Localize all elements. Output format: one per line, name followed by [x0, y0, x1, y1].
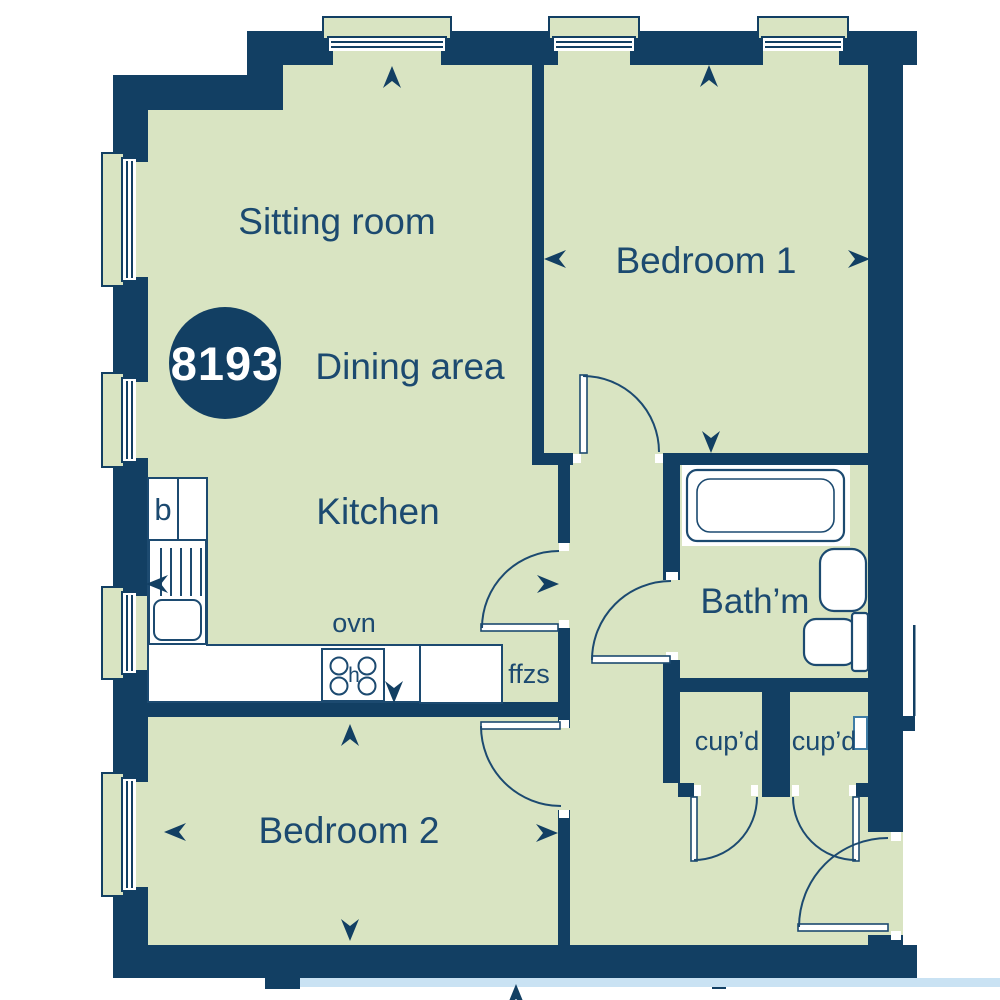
sink-basin — [154, 600, 201, 640]
room-label-cupboard-right: cup’d — [774, 725, 874, 757]
fixture-label-boiler: b — [150, 492, 176, 528]
arrow-up-icon — [700, 65, 718, 87]
door-bedroom1 — [580, 375, 659, 453]
arrow-up-icon — [341, 724, 359, 746]
arrow-up-icon — [383, 66, 401, 88]
fixture-label-hob: h — [344, 664, 364, 688]
room-label-sitting: Sitting room — [187, 199, 487, 245]
room-label-kitchen: Kitchen — [228, 489, 528, 535]
floor-plan: 8193 Sitting room Dining area Kitchen Be… — [0, 0, 1000, 1000]
door-bedroom2 — [481, 722, 561, 806]
arrow-up-icon — [507, 984, 525, 1000]
toilet-bowl — [804, 619, 856, 665]
room-label-bedroom1: Bedroom 1 — [556, 238, 856, 284]
bathtub-inner — [697, 479, 834, 532]
door-cupboard-right — [793, 797, 859, 861]
room-label-bedroom2: Bedroom 2 — [199, 808, 499, 854]
arrow-left-icon — [164, 823, 186, 841]
arrow-right-icon — [536, 824, 558, 842]
room-label-dining: Dining area — [260, 344, 560, 390]
neighbour-boundary-line — [913, 625, 916, 716]
door-kitchen — [481, 551, 559, 631]
fixture-label-fridge: ffzs — [489, 659, 569, 689]
door-cupboard-left — [691, 797, 757, 861]
arrow-right-icon — [537, 575, 559, 593]
arrow-down-icon — [341, 919, 359, 941]
room-label-bathroom: Bath’m — [655, 582, 855, 622]
room-label-cupboard-left: cup’d — [677, 725, 777, 757]
arrow-down-icon — [702, 431, 720, 453]
door-entrance — [798, 838, 888, 931]
fixture-label-oven: ovn — [314, 608, 394, 638]
